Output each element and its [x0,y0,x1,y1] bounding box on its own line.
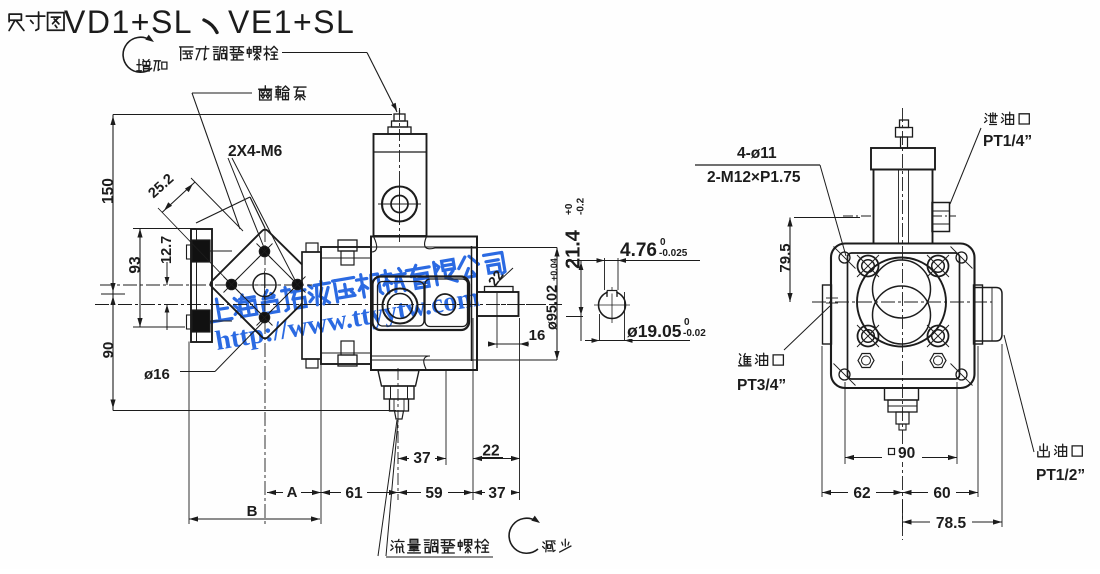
svg-text:93: 93 [127,256,144,274]
svg-text:12.7: 12.7 [159,236,175,264]
svg-text:79.5: 79.5 [777,243,794,272]
svg-text:-0.2: -0.2 [576,197,587,215]
svg-text:ø95.02: ø95.02 [545,285,561,330]
svg-text:4-ø11: 4-ø11 [737,145,777,162]
svg-text:-0.025: -0.025 [659,248,688,259]
svg-text:0: 0 [660,237,666,248]
svg-text:PT1/2”: PT1/2” [1036,467,1085,484]
svg-text:60: 60 [933,485,950,502]
svg-text:62: 62 [853,485,870,502]
svg-text:ø19.05: ø19.05 [627,321,682,341]
svg-text:150: 150 [100,178,117,204]
svg-text:61: 61 [345,485,363,502]
svg-text:VD1+SL: VD1+SL [64,4,193,40]
svg-text:59: 59 [425,485,443,502]
svg-text:A: A [287,484,298,501]
svg-text:4.76: 4.76 [620,240,657,261]
svg-text:2-M12×P1.75: 2-M12×P1.75 [707,169,801,186]
svg-text:-0.02: -0.02 [683,328,706,339]
svg-text:+0.04: +0.04 [549,258,559,281]
svg-text:37: 37 [488,485,505,502]
svg-text:ø16: ø16 [144,366,170,383]
svg-text:B: B [247,503,258,520]
svg-text:22: 22 [482,443,499,460]
svg-text:PT3/4”: PT3/4” [737,377,786,394]
svg-text:90: 90 [100,342,117,359]
svg-text:90: 90 [898,445,915,462]
svg-text:2X4-M6: 2X4-M6 [228,143,283,160]
svg-text:VE1+SL: VE1+SL [228,4,355,40]
svg-text:37: 37 [413,450,430,467]
svg-text:78.5: 78.5 [936,515,967,532]
svg-text:16: 16 [529,327,546,344]
svg-text:PT1/4”: PT1/4” [983,133,1032,150]
svg-text:+0: +0 [564,203,575,215]
svg-text:0: 0 [684,317,690,328]
